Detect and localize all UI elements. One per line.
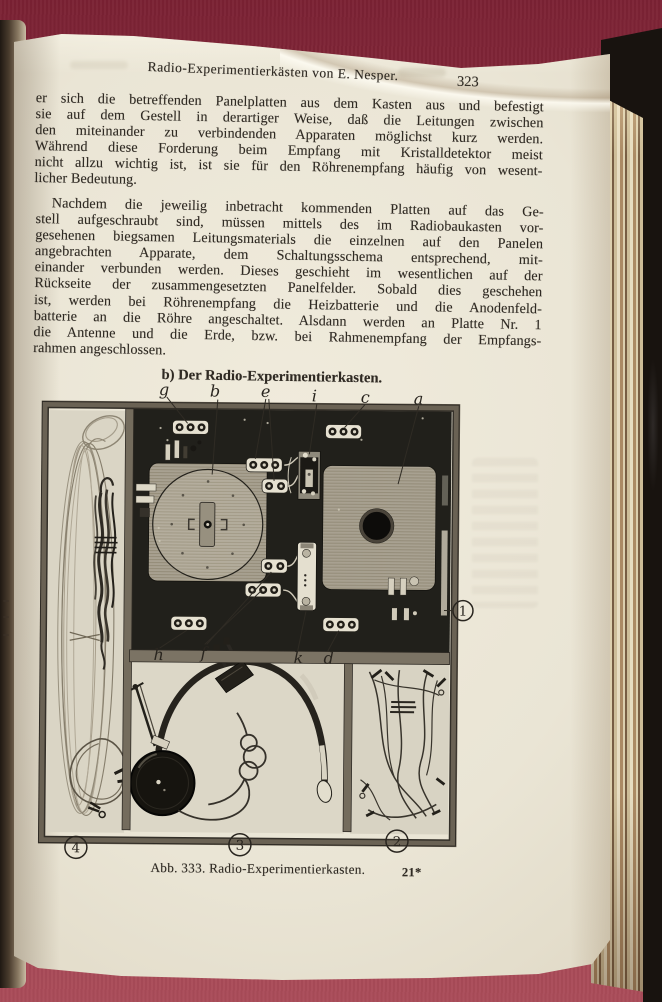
cover-sheen xyxy=(646,330,660,520)
book-page: Radio-Experimentierkästen von E. Nesper.… xyxy=(14,28,610,990)
figure-label-h: h xyxy=(153,645,163,664)
crystal-detector xyxy=(298,451,320,499)
earpiece xyxy=(130,751,195,816)
figure-label-i: i xyxy=(312,386,317,405)
figure-number-3: 3 xyxy=(236,838,245,854)
photo-background: Radio-Experimentierkästen von E. Nesper.… xyxy=(0,0,662,1002)
figure-label-e: e xyxy=(261,382,271,401)
gutter-text-fragment xyxy=(3,616,9,618)
panel-hole xyxy=(361,510,392,541)
show-through-smudge xyxy=(472,458,538,608)
running-header-title: Radio-Experimentierkästen von E. Nesper. xyxy=(147,59,398,84)
figure-label-b: b xyxy=(210,381,220,400)
figure-illustration: g b e i c a h f k d 1 2 3 4 xyxy=(38,377,478,869)
panel-edge-highlight xyxy=(442,475,448,505)
figure-label-c: c xyxy=(361,388,370,407)
show-through-smudge xyxy=(398,68,446,77)
show-through-smudge xyxy=(70,61,128,69)
figure-caption-row: Abb. 333. Radio-Experimentierkasten. 21* xyxy=(36,859,544,879)
figure-label-a: a xyxy=(414,389,424,408)
figure-label-k: k xyxy=(293,648,303,667)
gutter-text-fragment xyxy=(3,600,9,602)
page-number: 323 xyxy=(457,74,479,92)
paragraph-2: Nachdem die jeweilig inbetracht kommende… xyxy=(33,195,544,365)
figure-number-4: 4 xyxy=(72,840,81,856)
figure-number-2: 2 xyxy=(393,834,402,850)
figure-number-1: 1 xyxy=(459,604,468,620)
paragraph-1: er sich die betreffenden Panelplatten au… xyxy=(34,90,544,196)
tube-component xyxy=(297,542,317,610)
panel-edge-highlight xyxy=(441,530,448,615)
signature-mark: 21* xyxy=(402,865,422,880)
gutter-text-fragment xyxy=(3,634,9,636)
figure-caption: Abb. 333. Radio-Experimentierkasten. xyxy=(36,859,544,879)
figure-label-d: d xyxy=(323,648,333,667)
figure-label-g: g xyxy=(159,380,169,399)
